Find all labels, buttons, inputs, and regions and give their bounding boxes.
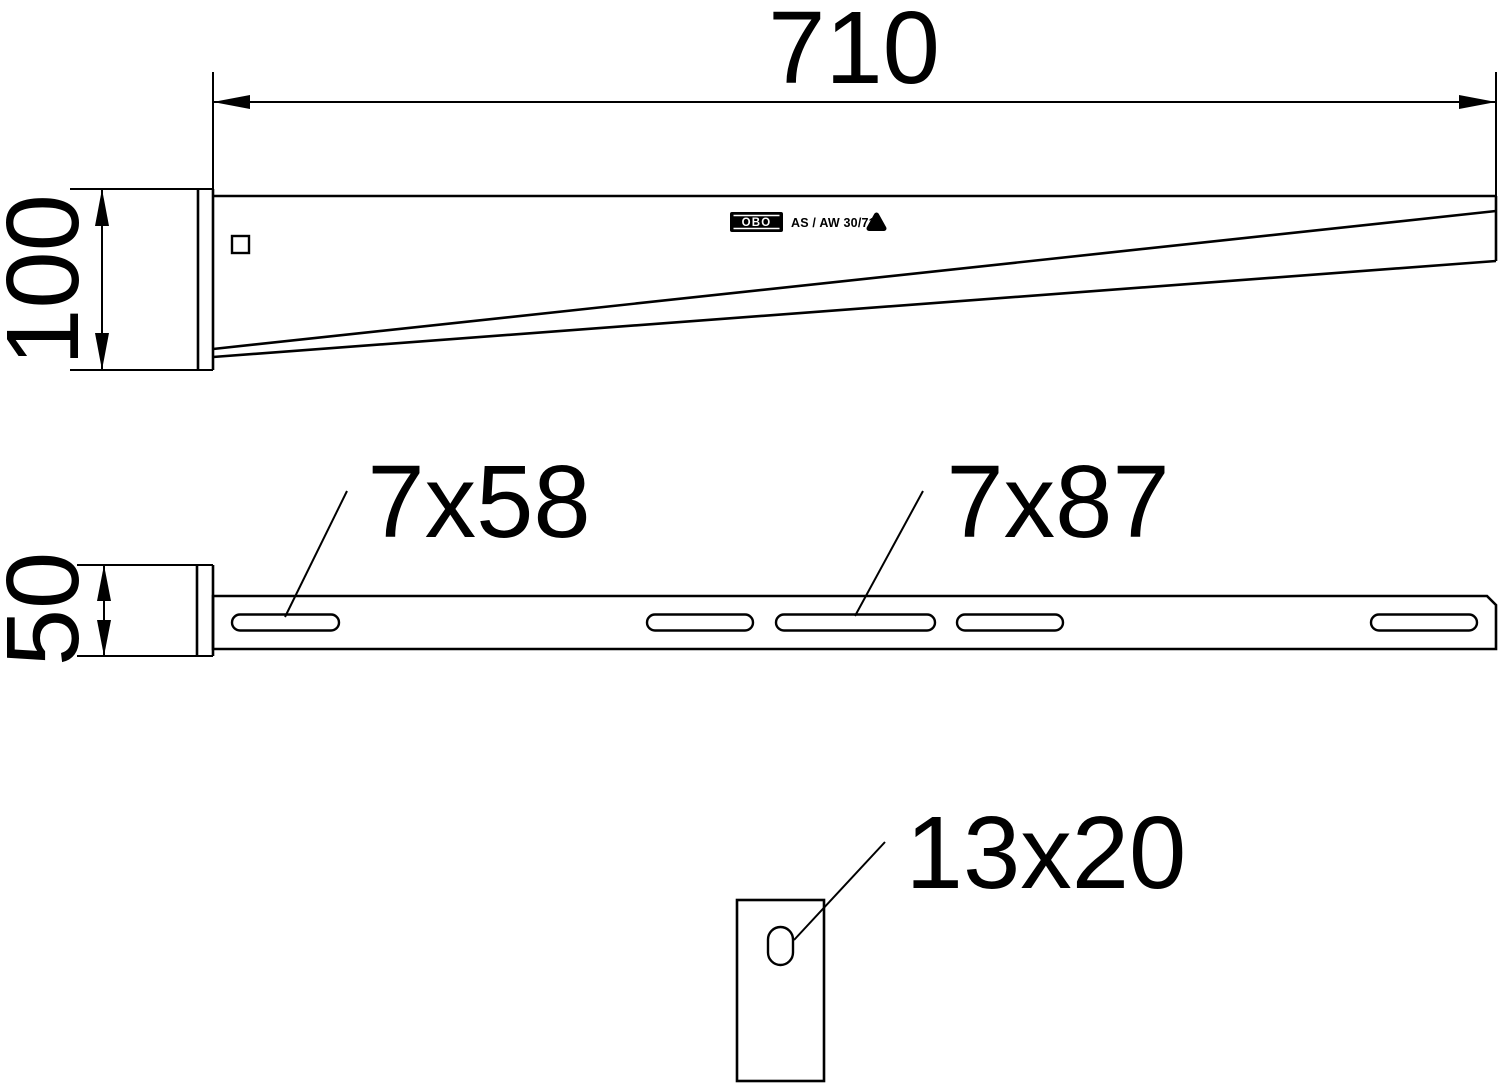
plate-width-dimension-50: 50 xyxy=(0,552,111,667)
dimension-arrow-right xyxy=(1459,95,1496,109)
oblong-hole-13x20 xyxy=(768,927,793,965)
square-hole xyxy=(232,236,249,253)
leader-line-13x20 xyxy=(794,842,885,940)
slot-callouts: 7x58 7x87 xyxy=(285,444,1170,617)
slot-7x87 xyxy=(776,615,935,631)
plate-height-dimension-100: 100 xyxy=(0,189,109,370)
dimension-drawing-canvas: 710 100 OBO A xyxy=(0,0,1500,1083)
dimension-arrow-left xyxy=(213,95,250,109)
obo-logo-text: OBO xyxy=(742,217,772,229)
length-dimension-710: 710 xyxy=(213,0,1496,212)
side-view: 710 100 OBO A xyxy=(0,0,1496,370)
large-slot-label: 7x87 xyxy=(946,444,1169,559)
front-view: 13x20 xyxy=(737,795,1186,1081)
plate-width-dim-label: 50 xyxy=(0,552,100,667)
length-dim-label: 710 xyxy=(768,0,940,105)
arm-bend-line xyxy=(213,211,1496,349)
slot-7x58-2 xyxy=(647,615,753,631)
product-stamp: OBO AS / AW 30/71 xyxy=(730,212,884,232)
oblong-hole-label: 13x20 xyxy=(906,795,1187,910)
plate-height-dim-label: 100 xyxy=(0,194,100,366)
small-slot-label: 7x58 xyxy=(367,444,590,559)
plan-view: 50 7x58 7x87 xyxy=(0,444,1496,666)
model-stamp-text: AS / AW 30/71 xyxy=(791,216,876,230)
arm-bottom-edge xyxy=(213,261,1496,357)
slot-7x58-4 xyxy=(1371,615,1477,631)
arm-plan xyxy=(213,596,1496,649)
bracket-dimension-drawing: 710 100 OBO A xyxy=(0,0,1500,1083)
leader-line-7x58 xyxy=(285,491,347,617)
slot-7x58-3 xyxy=(957,615,1063,631)
